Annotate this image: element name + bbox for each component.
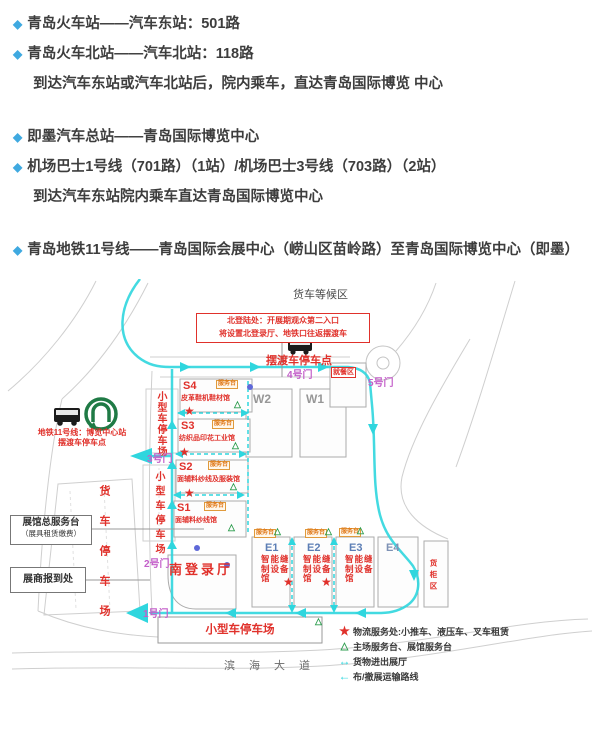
transport-text: 青岛地铁11号线——青岛国际会展中心（崂山区苗岭路）至青岛国际博览中心（即墨） bbox=[27, 239, 579, 261]
small-parking-lower-label: 小型车停车场 bbox=[151, 471, 166, 558]
page: ◆ 青岛火车站——汽车东站：501路 ◆ 青岛火车北站——汽车北站：118路 到… bbox=[0, 0, 600, 734]
service-desk-icon: △ bbox=[274, 527, 281, 536]
north-entry-info-box: 北登陆处：开展期观众第二入口 将设置北登录厅、地铁口往返摆渡车 bbox=[196, 313, 370, 343]
legend-triangle-icon: △ bbox=[336, 640, 353, 653]
bullet-diamond-icon: ◆ bbox=[13, 43, 22, 65]
logistics-star-icon: ★ bbox=[321, 576, 332, 588]
service-desk-icon: △ bbox=[234, 400, 241, 409]
hall-s3-label: S3 bbox=[181, 420, 194, 432]
transport-line: 到达汽车东站或汽车北站后，院内乘车，直达青岛国际博览 中心 bbox=[13, 73, 600, 95]
legend-text: 货物进出展厅 bbox=[353, 655, 407, 668]
hall-s4-name: 皮革鞋机鞋材馆 bbox=[181, 393, 230, 403]
truck-parking-label: 货车停车场 bbox=[96, 485, 112, 635]
transport-line: 到达汽车东站院内乘车直达青岛国际博览中心 bbox=[13, 186, 600, 208]
roundabout-inner bbox=[377, 357, 389, 369]
metro-shuttle-bus-icon bbox=[54, 408, 80, 426]
legend-row: ← 布/撤展运输路线 bbox=[336, 670, 509, 683]
legend-text: 主场服务台、展馆服务台 bbox=[353, 640, 452, 653]
hall-e3-name: 智能缝制设备馆 bbox=[345, 555, 375, 584]
small-parking-upper-label: 小型车停车场 bbox=[153, 391, 168, 457]
logistics-star-icon: ★ bbox=[179, 446, 190, 458]
registration-callout-box: 展商报到处 bbox=[10, 567, 86, 593]
service-desk-icon: △ bbox=[232, 441, 239, 450]
transport-info: ◆ 青岛火车站——汽车东站：501路 ◆ 青岛火车北站——汽车北站：118路 到… bbox=[0, 0, 600, 261]
legend-text: 物流服务处:小推车、液压车、叉车租赁 bbox=[353, 625, 509, 638]
hall-s4-badge: 服务台 bbox=[216, 380, 238, 389]
gate2-label: 2号门 bbox=[144, 555, 170, 570]
logistics-star-icon: ★ bbox=[184, 405, 195, 417]
legend-double-arrow-icon: ↔ bbox=[336, 655, 353, 668]
hall-e2-label: E2 bbox=[307, 542, 320, 554]
transport-text: 到达汽车东站或汽车北站后，院内乘车，直达青岛国际博览 中心 bbox=[33, 73, 443, 95]
hall-e3-label: E3 bbox=[349, 542, 362, 554]
logistics-star-icon: ★ bbox=[184, 487, 195, 499]
hall-s3-name: 纺织品印花工业馆 bbox=[179, 433, 235, 443]
legend-row: ★ 物流服务处:小推车、液压车、叉车租赁 bbox=[336, 625, 509, 638]
truck-wait-area-label: 货车等候区 bbox=[293, 286, 348, 302]
transport-text: 机场巴士1号线（701路）（1站）/机场巴士3号线（703路）（2站） bbox=[27, 156, 445, 178]
metro-station-line2: 摆渡车停车点 bbox=[26, 437, 138, 448]
service-desk-icon: △ bbox=[230, 482, 237, 491]
hall-s1-badge: 服务台 bbox=[204, 502, 226, 511]
hall-s3-badge: 服务台 bbox=[212, 420, 234, 429]
hall-e1-label: E1 bbox=[265, 542, 278, 554]
hall-s1-name: 面辅料纱线馆 bbox=[175, 515, 217, 525]
transport-text: 青岛火车北站——汽车北站：118路 bbox=[27, 43, 253, 65]
legend-arrow-icon: ← bbox=[336, 670, 353, 683]
container-area-label: 货柜区 bbox=[428, 559, 439, 594]
transport-line: ◆ 即墨汽车总站——青岛国际博览中心 bbox=[13, 126, 600, 148]
hall-s4-label: S4 bbox=[183, 380, 196, 392]
north-entry-line2: 将设置北登录厅、地铁口往返摆渡车 bbox=[197, 328, 369, 341]
transport-line: ◆ 机场巴士1号线（701路）（1站）/机场巴士3号线（703路）（2站） bbox=[13, 156, 600, 178]
hall-s2-label: S2 bbox=[179, 461, 192, 473]
transport-text: 青岛火车站——汽车东站：501路 bbox=[27, 13, 240, 35]
gate3-label: 3号门 bbox=[147, 450, 173, 465]
bullet-diamond-icon: ◆ bbox=[13, 156, 22, 178]
south-hall-label: 南登录厅 bbox=[169, 559, 233, 578]
gate4-label: 4号门 bbox=[287, 366, 313, 381]
hall-e1-badge: 服务台 bbox=[254, 529, 276, 538]
transport-line: ◆ 青岛火车站——汽车东站：501路 bbox=[13, 13, 600, 35]
hall-w2-label: W2 bbox=[253, 392, 271, 406]
south-parking-label: 小型车停车场 bbox=[158, 617, 322, 643]
hall-w1-label: W1 bbox=[306, 392, 324, 406]
dining-area-label: 就餐区 bbox=[331, 367, 356, 378]
hall-s2-badge: 服务台 bbox=[208, 461, 230, 470]
hall-e2-badge: 服务台 bbox=[305, 529, 327, 538]
legend-row: ↔ 货物进出展厅 bbox=[336, 655, 509, 668]
bullet-diamond-icon: ◆ bbox=[13, 126, 22, 148]
legend-star-icon: ★ bbox=[336, 625, 353, 638]
legend-row: △ 主场服务台、展馆服务台 bbox=[336, 640, 509, 653]
service-desk-line1: 展馆总服务台 bbox=[11, 516, 91, 529]
transport-line: ◆ 青岛地铁11号线——青岛国际会展中心（崂山区苗岭路）至青岛国际博览中心（即墨… bbox=[13, 239, 600, 261]
bullet-diamond-icon: ◆ bbox=[13, 239, 22, 261]
north-entry-line1: 北登陆处：开展期观众第二入口 bbox=[197, 315, 369, 328]
legend-text: 布/撤展运输路线 bbox=[353, 670, 419, 683]
service-desk-line2: （展具租赁缴费） bbox=[11, 529, 91, 539]
hall-e4-label: E4 bbox=[386, 542, 399, 554]
gate5-label: 5号门 bbox=[368, 374, 394, 389]
service-desk-icon: △ bbox=[357, 526, 364, 535]
service-desk-callout-box: 展馆总服务台 （展具租赁缴费） bbox=[10, 515, 92, 545]
venue-map: 货车等候区 北登陆处：开展期观众第二入口 将设置北登录厅、地铁口往返摆渡车 摆渡… bbox=[0, 279, 600, 703]
service-desk-icon: △ bbox=[325, 527, 332, 536]
transport-text: 即墨汽车总站——青岛国际博览中心 bbox=[27, 126, 259, 148]
transport-line: ◆ 青岛火车北站——汽车北站：118路 bbox=[13, 43, 600, 65]
logistics-star-icon: ★ bbox=[283, 576, 294, 588]
map-legend: ★ 物流服务处:小推车、液压车、叉车租赁 △ 主场服务台、展馆服务台 ↔ 货物进… bbox=[336, 625, 509, 685]
service-desk-icon: △ bbox=[228, 523, 235, 532]
binhai-road-label: 滨海大道 bbox=[224, 657, 324, 673]
transport-text: 到达汽车东站院内乘车直达青岛国际博览中心 bbox=[33, 186, 323, 208]
bullet-diamond-icon: ◆ bbox=[13, 13, 22, 35]
hall-s1-label: S1 bbox=[177, 502, 190, 514]
